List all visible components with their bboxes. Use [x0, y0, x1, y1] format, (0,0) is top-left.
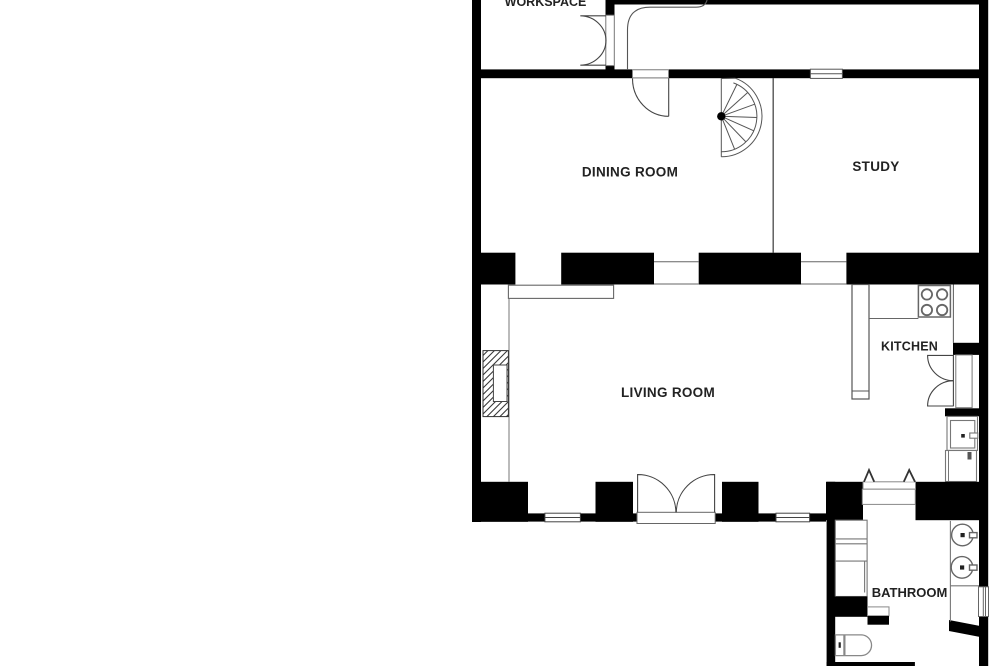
svg-text:LIVING ROOM: LIVING ROOM	[621, 385, 715, 400]
svg-text:WORKSPACE: WORKSPACE	[505, 0, 587, 9]
svg-text:KITCHEN: KITCHEN	[881, 340, 938, 354]
svg-text:DINING ROOM: DINING ROOM	[582, 165, 678, 180]
svg-text:STUDY: STUDY	[852, 159, 899, 174]
svg-text:BATHROOM: BATHROOM	[872, 585, 948, 600]
